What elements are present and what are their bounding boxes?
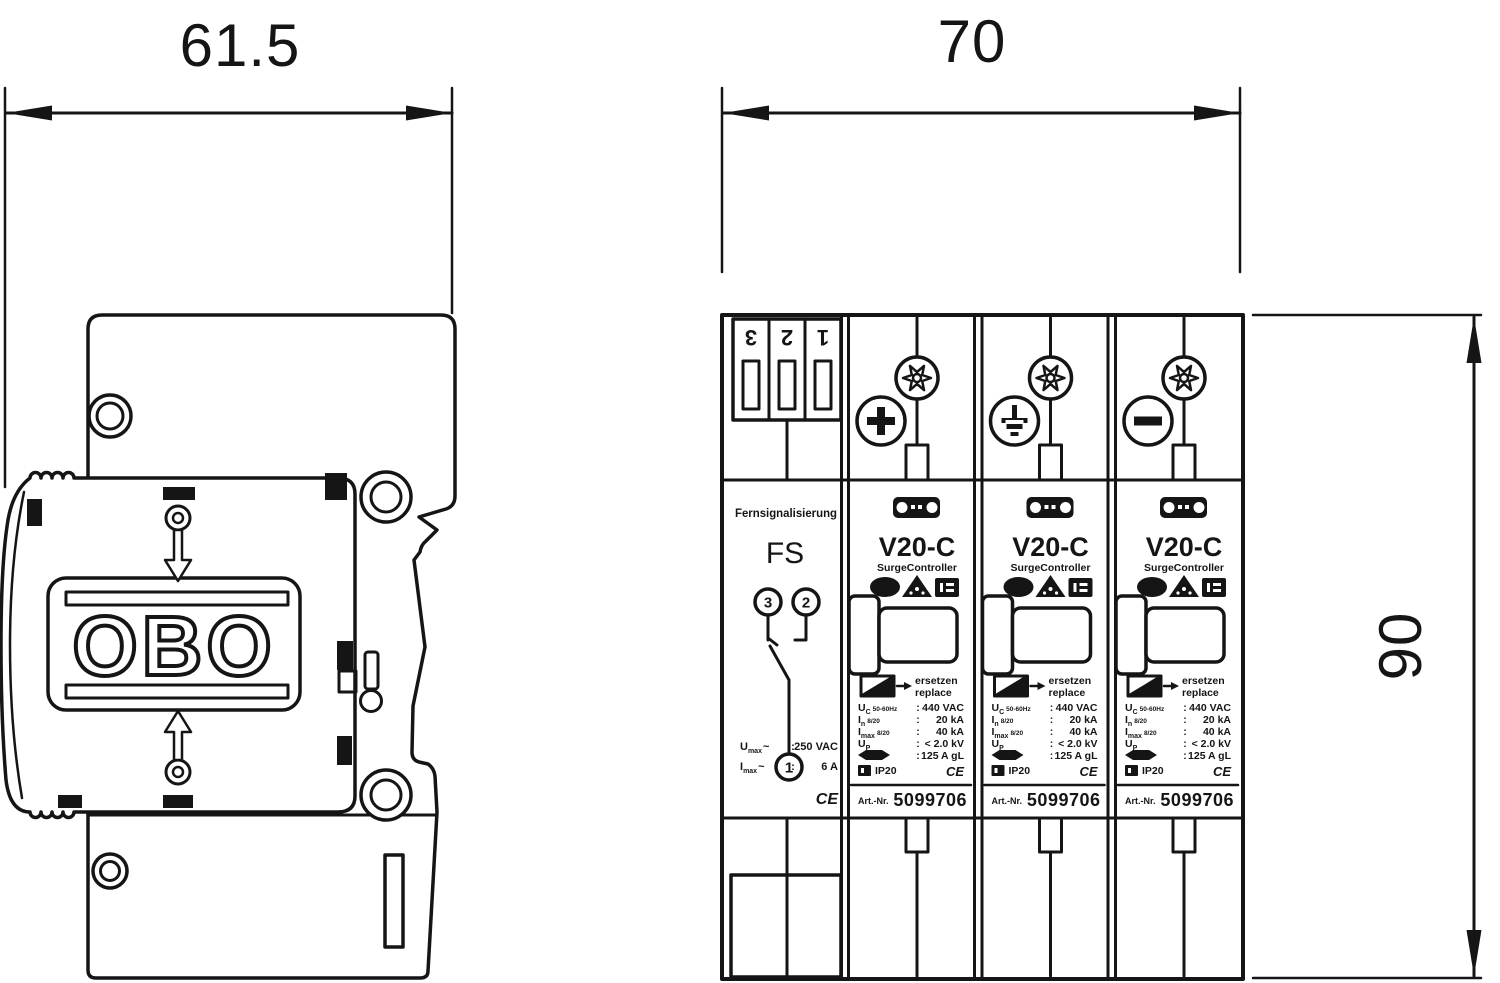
drawing-svg: 61.5 70 90 [0, 0, 1500, 983]
svg-text:440 VAC: 440 VAC [1056, 702, 1098, 714]
plus-terminal-icon [857, 397, 905, 445]
svg-text::: : [1050, 726, 1054, 738]
dimension-front-width-value: 70 [938, 8, 1007, 75]
obo-badge-icon [893, 497, 940, 518]
obo-logo-text: OBO [72, 599, 275, 693]
dimension-arrow-icon [406, 106, 452, 121]
svg-text:125 A gL: 125 A gL [1188, 750, 1232, 762]
replace-label-en: replace [915, 687, 952, 699]
separator: : [791, 761, 795, 773]
terminal-number: 1 [817, 325, 829, 350]
svg-text:< 2.0 kV: < 2.0 kV [1058, 738, 1097, 750]
torx-screw-icon [1163, 357, 1205, 399]
torx-screw-icon [1030, 357, 1072, 399]
ip-rating: IP20 [1009, 765, 1031, 777]
screw-icon [361, 770, 411, 820]
svg-text::: : [916, 750, 920, 762]
svg-text::: : [916, 738, 920, 750]
ip-rating: IP20 [875, 765, 897, 777]
art-no-label: Art.-Nr. [1125, 796, 1156, 806]
dimension-arrow-icon [1467, 930, 1482, 976]
ce-mark: CE [816, 791, 840, 808]
vent-slot-icon [163, 795, 193, 808]
dimension-arrow-icon [723, 106, 769, 121]
model-subtitle: SurgeController [1011, 562, 1091, 574]
side-view: OBO [1, 315, 455, 978]
model-subtitle: SurgeController [1144, 562, 1224, 574]
svg-text::: : [1050, 702, 1054, 714]
model-name: V20-C [879, 532, 956, 562]
obo-badge-icon [1027, 497, 1074, 518]
svg-text:125 A gL: 125 A gL [921, 750, 965, 762]
clip-icon [337, 641, 353, 670]
svg-text::: : [1050, 714, 1054, 726]
svg-text:40 kA: 40 kA [936, 726, 964, 738]
vent-slot-icon [58, 795, 82, 808]
kema-oval-icon [1004, 577, 1034, 597]
ce-mark: CE [946, 764, 964, 779]
kema-oval-icon [1137, 577, 1167, 597]
ce-mark: CE [1213, 764, 1231, 779]
terminal-number: 3 [745, 325, 757, 350]
art-no: 5099706 [893, 790, 967, 810]
svg-text:< 2.0 kV: < 2.0 kV [925, 738, 964, 750]
svg-text:40 kA: 40 kA [1203, 726, 1231, 738]
dimension-front-height: 90 [1253, 315, 1482, 978]
ce-mark: CE [1079, 764, 1097, 779]
approval-box-icon [1069, 578, 1093, 597]
ip-box-icon [858, 765, 871, 776]
ip-box-icon [992, 765, 1005, 776]
contact-number: 3 [764, 595, 772, 612]
svg-text:20 kA: 20 kA [936, 714, 964, 726]
svg-text:40 kA: 40 kA [1069, 726, 1097, 738]
vent-slot-icon [163, 487, 195, 500]
dimension-front-height-value: 90 [1367, 612, 1434, 681]
fs-title: Fernsignalisierung [735, 506, 837, 520]
kema-oval-icon [870, 577, 900, 597]
ip-rating: IP20 [1142, 765, 1164, 777]
art-no: 5099706 [1027, 790, 1101, 810]
dimension-arrow-icon [1194, 106, 1240, 121]
dimension-arrow-icon [6, 106, 52, 121]
obo-badge-icon [1160, 497, 1207, 518]
torx-screw-icon [896, 357, 938, 399]
svg-text::: : [1183, 702, 1187, 714]
art-no-label: Art.-Nr. [858, 796, 889, 806]
svg-text:20 kA: 20 kA [1069, 714, 1097, 726]
replace-label-en: replace [1049, 687, 1086, 699]
screw-icon [361, 472, 411, 522]
ip-box-icon [1125, 765, 1138, 776]
dimension-arrow-icon [1467, 317, 1482, 363]
svg-text:125 A gL: 125 A gL [1055, 750, 1099, 762]
technical-drawing-canvas: 61.5 70 90 [0, 0, 1500, 983]
art-no: 5099706 [1160, 790, 1234, 810]
clip-icon [337, 736, 352, 765]
model-name: V20-C [1146, 532, 1223, 562]
dimension-side-width-value: 61.5 [180, 12, 301, 79]
svg-text:< 2.0 kV: < 2.0 kV [1192, 738, 1231, 750]
svg-text::: : [916, 702, 920, 714]
clip-icon [325, 473, 347, 500]
replace-label-de: ersetzen [1182, 675, 1225, 687]
fs-name: FS [766, 537, 804, 570]
svg-text:20 kA: 20 kA [1203, 714, 1231, 726]
fs-spec-value: 250 VAC [794, 741, 838, 753]
clip-icon [27, 499, 42, 526]
svg-text::: : [1183, 750, 1187, 762]
dimension-front-width: 70 [722, 8, 1240, 272]
svg-text::: : [1183, 738, 1187, 750]
replace-label-en: replace [1182, 687, 1219, 699]
approval-box-icon [1202, 578, 1226, 597]
earth-terminal-icon [991, 397, 1039, 445]
minus-terminal-icon [1124, 397, 1172, 445]
svg-text::: : [1183, 714, 1187, 726]
model-name: V20-C [1012, 532, 1089, 562]
svg-text::: : [1050, 738, 1054, 750]
model-subtitle: SurgeController [877, 562, 957, 574]
terminal-number: 2 [781, 325, 793, 350]
svg-text::: : [1183, 726, 1187, 738]
contact-number: 2 [802, 595, 810, 612]
svg-text:440 VAC: 440 VAC [922, 702, 964, 714]
svg-text::: : [916, 714, 920, 726]
approval-box-icon [935, 578, 959, 597]
svg-text::: : [916, 726, 920, 738]
svg-text::: : [1050, 750, 1054, 762]
replace-label-de: ersetzen [915, 675, 958, 687]
art-no-label: Art.-Nr. [992, 796, 1023, 806]
svg-text:440 VAC: 440 VAC [1189, 702, 1231, 714]
front-view: 3 2 1 Fernsignalisierung FS 3 2 [722, 315, 1243, 979]
fs-spec-value: 6 A [821, 761, 838, 773]
replace-label-de: ersetzen [1049, 675, 1092, 687]
